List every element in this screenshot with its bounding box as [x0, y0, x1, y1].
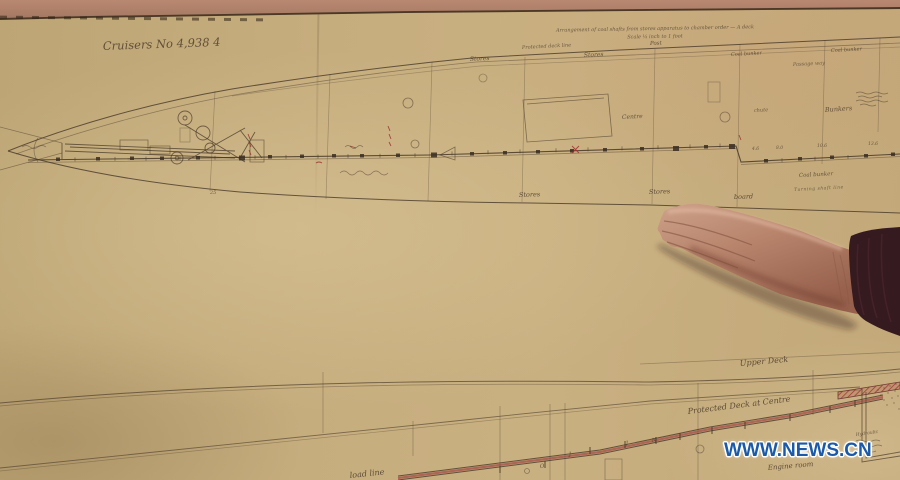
profile-port-2 — [525, 469, 530, 474]
sheet-title: Cruisers No 4,938 4 — [103, 35, 221, 53]
profile-port-1 — [696, 445, 704, 453]
label-coal-bunker-bottom: Coal bunker — [799, 171, 834, 179]
label-stores-bottom-left: Stores — [519, 190, 541, 199]
label-frame-number: 25 — [209, 190, 216, 196]
label-passage-way: Passage way — [792, 60, 826, 68]
label-load-line: load line — [349, 467, 385, 480]
label-stores-bottom-right: Stores — [649, 187, 671, 196]
header-note-line1: Arrangement of coal shafts from stores a… — [555, 24, 754, 33]
label-upper-deck: Upper Deck — [739, 355, 788, 368]
hull-top-edge — [8, 37, 900, 151]
measurement-2: 8.0 — [776, 145, 783, 151]
header-note-line2: Scale ¼ inch to 1 foot — [627, 32, 684, 40]
label-coal-bunker-top-right: Coal bunker — [831, 46, 863, 54]
handwritten-annotations — [22, 92, 888, 175]
label-stores-top-left: Stores — [470, 55, 490, 63]
label-chute: chute — [754, 107, 769, 114]
label-board: board — [734, 192, 753, 201]
sleeve-cuff — [849, 227, 900, 336]
measurement-4: 13.6 — [868, 141, 878, 147]
photo-of-ship-blueprint: Cruisers No 4,938 4 Arrangement of coal … — [0, 0, 900, 480]
hull-longitudinal — [232, 47, 900, 96]
bow-machinery — [62, 111, 264, 164]
blueprint-drawing: Cruisers No 4,938 4 Arrangement of coal … — [0, 0, 900, 480]
label-protected-deck-line: Protected deck line — [521, 42, 572, 51]
label-turning-line: Turning shaft line — [794, 184, 844, 193]
news-watermark: WWW.NEWS.CN — [724, 440, 872, 462]
hand-on-blueprint — [656, 204, 900, 336]
measurement-3: 10.6 — [817, 143, 827, 149]
plan-view: Cruisers No 4,938 4 Arrangement of coal … — [0, 24, 900, 213]
frame-letter-O: O — [540, 463, 546, 469]
label-hydraulic-note: Hydraulic — [854, 429, 879, 438]
label-post: Post — [649, 41, 663, 47]
frame-letter-N: N — [651, 437, 658, 444]
label-bunkers: Bunkers — [824, 104, 854, 114]
label-coal-bunker-top-mid: Coal bunker — [731, 50, 763, 58]
plan-details — [180, 74, 730, 160]
measurement-1: 4.6 — [751, 146, 759, 152]
label-stores-top-mid: Stores — [584, 51, 604, 59]
profile-small-hatch — [605, 459, 622, 480]
red-annotations — [248, 126, 741, 163]
label-centre: Centre — [622, 113, 644, 121]
